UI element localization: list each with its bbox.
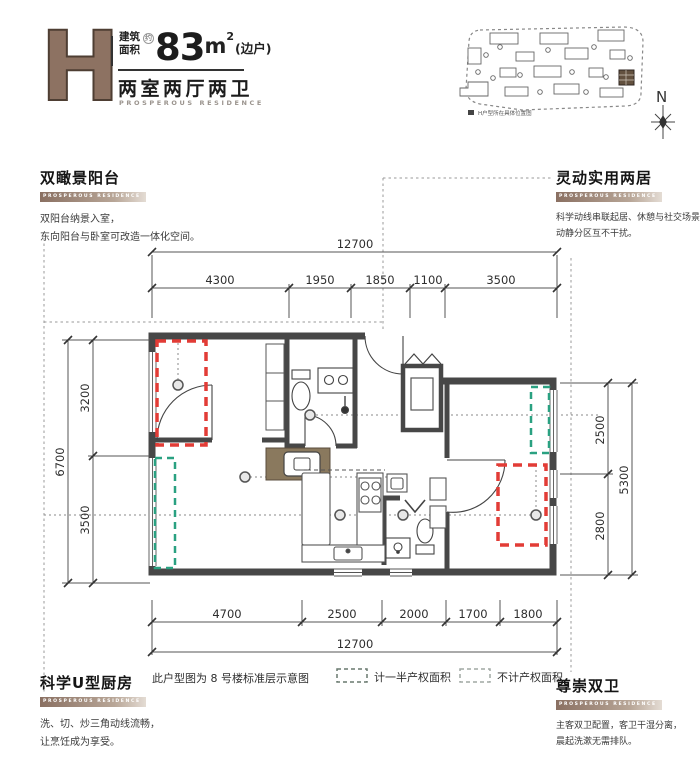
dim-bottom-4: 1700 [458, 607, 487, 621]
dim-top-3: 1850 [365, 273, 394, 287]
half-area-bedroom1 [157, 341, 206, 445]
dim-bottom-total: 12700 [337, 637, 374, 651]
floor-plan-drawing: H户型所在具体位置图 N [0, 0, 700, 770]
burner [372, 482, 380, 490]
north-indicator: N [651, 88, 675, 139]
kitchen-island [302, 473, 330, 545]
dim-bottom-5: 1800 [513, 607, 542, 621]
window-bath2-south [390, 567, 412, 577]
site-buildings [460, 30, 625, 97]
dim-left-2: 3500 [78, 505, 92, 534]
dim-left-total: 6700 [53, 447, 67, 476]
legend-half-swatch [337, 669, 367, 682]
legend-half-label: 计一半产权面积 [374, 670, 451, 684]
dim-bottom-1: 4700 [212, 607, 241, 621]
window-bedroom2-east-2 [548, 506, 558, 544]
legend-none-swatch [460, 669, 490, 682]
kitchen-faucet [346, 549, 350, 553]
balcony-west [155, 458, 175, 568]
dim-top-5: 3500 [486, 273, 515, 287]
dim-right-total: 5300 [617, 465, 631, 494]
toilet1-tank [292, 370, 310, 379]
unit-plan [147, 333, 558, 578]
dim-bottom-2: 2500 [327, 607, 356, 621]
compass-needle [659, 115, 667, 129]
doors [157, 336, 505, 512]
wardrobe [266, 344, 284, 430]
legend-none-label: 不计产权面积 [497, 670, 563, 684]
window-kitchen-south [334, 567, 362, 577]
dim-top-2: 1950 [305, 273, 334, 287]
dim-top-4: 1100 [413, 273, 442, 287]
basin1-left [325, 376, 334, 385]
hall-basin-bowl [391, 478, 403, 489]
connector-lines [44, 178, 571, 692]
half-area-bedroom2 [498, 465, 546, 545]
site-caption-swatch [468, 110, 474, 115]
hall-closets [430, 478, 446, 528]
dim-bottom-3: 2000 [399, 607, 428, 621]
entry-door [365, 336, 403, 374]
guest-bath [386, 519, 434, 558]
bay-east [531, 387, 549, 453]
toilet2-tank [416, 545, 434, 554]
master-bath [292, 368, 353, 414]
bath2-folding-door [405, 500, 425, 512]
utility-zigzag [405, 354, 441, 364]
site-plan: H户型所在具体位置图 [460, 27, 643, 117]
burner [361, 482, 369, 490]
burner [372, 496, 380, 504]
basin2 [394, 543, 402, 551]
shower-head [342, 407, 349, 414]
site-caption: H户型所在具体位置图 [478, 109, 532, 117]
dim-left-1: 3200 [78, 383, 92, 412]
north-label: N [656, 88, 667, 106]
dim-right-1: 2500 [593, 415, 607, 444]
bedroom1-door [157, 385, 212, 440]
toilet1-bowl [292, 382, 310, 410]
dim-top-1: 4300 [205, 273, 234, 287]
floorplan-page: H 建筑 面积 约 83 m 2 (边户) 两室两厅两卫 PROSPEROUS … [0, 0, 700, 770]
site-highlighted-building [619, 70, 634, 85]
dim-right-2: 2800 [593, 511, 607, 540]
burner [361, 496, 369, 504]
plan-note: 此户型图为 8 号楼标准层示意图 [152, 671, 309, 685]
basin1-right [339, 376, 348, 385]
plan-note-legend: 此户型图为 8 号楼标准层示意图 计一半产权面积 不计产权面积 [152, 669, 563, 685]
window-bedroom2-east-1 [548, 470, 558, 498]
utility-box [403, 354, 441, 430]
dim-top-total: 12700 [337, 237, 374, 251]
